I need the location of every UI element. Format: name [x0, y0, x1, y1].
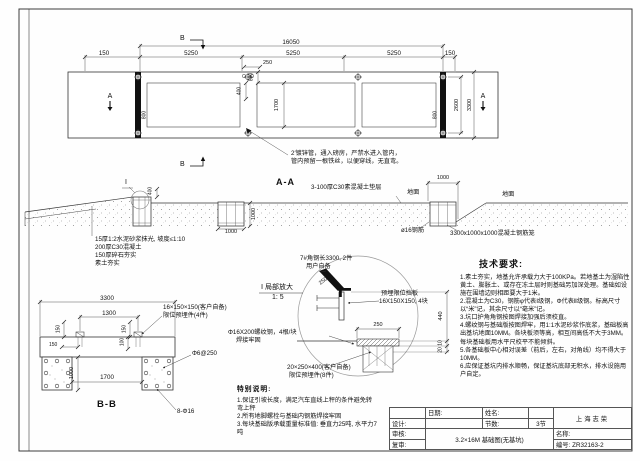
tb-recheck-label: 复审:	[390, 439, 426, 450]
plan-dim-800-right-bar: 800	[433, 111, 438, 119]
section-bb-title: B-B	[97, 400, 117, 410]
plan-dim-5250-2: 5250	[286, 51, 300, 58]
bb-bars-label: 8-Φ16	[177, 409, 194, 416]
detail-baffle-line2: 16X150X150, 4块	[379, 299, 428, 306]
plan-dim-2600: 2600	[455, 99, 461, 111]
plan-section-marker-a-right: A	[481, 93, 486, 100]
drawing-sheet: 16050 150 5250 5250 5250 150 800 250 400…	[0, 0, 640, 461]
tb-empty-cell	[390, 408, 426, 419]
detail-dim-20: 20	[438, 347, 443, 353]
plan-dim-5250-3: 5250	[387, 51, 401, 58]
detail-view	[259, 256, 449, 376]
tech-req-5: 5.各基础板中心相对误差（前后，左右，对角线）均不得大于10MM。	[460, 347, 630, 363]
detail-angle-line1: 7#角钢长3300, 2件	[300, 256, 352, 263]
tech-req-2: 2.混凝土为C30，钢筋φ代表Ⅰ级钢，Φ代表Ⅱ级钢。标高尺寸以“米”记，其余尺寸…	[460, 298, 630, 314]
plan-dim-800-left-bar: 800	[142, 111, 147, 119]
bb-dim-3300: 3300	[100, 296, 114, 303]
aa-cushion-label: 3-100厚C30素混凝土垫层	[311, 185, 382, 192]
aa-dim-400: 400	[148, 187, 153, 195]
tb-company: 上海志荣	[554, 408, 632, 429]
plan-dim-3300: 3300	[468, 99, 474, 111]
aa-detail-flag: I	[125, 179, 127, 186]
tech-requirements-title: 技术要求:	[479, 260, 523, 269]
detail-embed-line1: 20×250×400(客户自备)	[287, 365, 351, 372]
tech-req-4: 4.螺纹钢与基础版按图焊牢，用1:1水泥砂浆作底浆，基础板高出基坑地面10MM。…	[460, 322, 630, 346]
bb-dim-100: 100	[120, 338, 125, 346]
aa-dim-1000-w: 1000	[225, 230, 237, 236]
plan-dim-overall: 16050	[282, 40, 299, 47]
tb-title-label: 名称:	[554, 429, 632, 440]
detail-baffle-line1: 预埋限位挡板	[381, 291, 418, 298]
plan-dim-800-top: 800	[249, 73, 254, 81]
aa-dim-1000-h: 1000	[252, 208, 258, 220]
aa-ground-right-label: 地面	[502, 192, 514, 199]
bb-dim-150-right: 150	[122, 325, 127, 333]
bb-dim-1300: 1300	[102, 311, 116, 318]
tb-design-value	[426, 418, 483, 429]
bb-dim-1000: 1000	[70, 367, 76, 379]
tech-req-6: 6.应保证基坑内排水顺畅，保证基坑底部无积水，排水设施用户自定。	[460, 363, 630, 379]
aa-cage-label: 3300x1000x1000混凝土钢筋笼	[450, 231, 535, 238]
plan-dim-150-left: 150	[99, 51, 109, 58]
bb-stirrup-label: Φ6@250	[192, 351, 217, 358]
special-notes: 特别说明: 1.保证引坡长度，满足汽车直线上秤的条件避免转弯上秤 2.所有地脚螺…	[237, 386, 377, 437]
special-note-3: 3.每块基础版承载重量标准值: 垂直力25吨, 水平力7吨	[237, 421, 377, 437]
tb-drawing-title: 3.2×16M 基础图(无基坑)	[426, 429, 554, 450]
detail-embed-line2: 限位预埋件(8件)	[289, 373, 334, 380]
detail-dim-440: 440	[439, 311, 445, 320]
detail-angle-line2: 用户自备	[306, 264, 331, 271]
bb-dim-1700: 1700	[100, 375, 114, 382]
bb-limit-line2: 限位预埋件(4件)	[163, 313, 208, 320]
detail-dim-10: 10	[438, 340, 443, 346]
bb-dim-150-left: 150	[56, 325, 61, 333]
title-block: 日期: 姓名: 上海志荣 设计: 节数: 3节 审核: 3.2×16M 基础图(…	[389, 407, 632, 450]
detail-title-line1: Ⅰ 局部放大	[261, 284, 293, 291]
section-aa-title: A-A	[276, 178, 295, 187]
detail-dim-250: 250	[373, 323, 382, 329]
special-note-2: 2.所有地脚螺栓与基础内钢筋焊接牢固	[237, 413, 377, 421]
special-notes-title: 特别说明:	[237, 386, 377, 395]
plan-section-marker-b-bottom: B	[180, 161, 185, 168]
aa-dim-1000-pit: 1000	[437, 176, 449, 182]
tb-date-label: 日期:	[426, 408, 483, 419]
aa-rebar-label: ø16钢筋	[401, 228, 424, 235]
plan-dim-1700: 1700	[275, 99, 281, 111]
aa-layer-line2: 200厚C30混凝土	[95, 245, 141, 252]
detail-title-scale: 1: 5	[272, 294, 284, 301]
special-note-1: 1.保证引坡长度，满足汽车直线上秤的条件避免转弯上秤	[237, 397, 377, 413]
plan-dim-400: 400	[237, 87, 242, 95]
aa-ground-left-label: 地面	[407, 190, 419, 197]
tb-empty-cell2	[529, 408, 554, 419]
detail-rebar-line2: 焊接牢固	[236, 338, 261, 345]
bb-dim-150-h: 150	[49, 343, 57, 348]
plan-dim-5250-1: 5250	[184, 51, 198, 58]
plan-section-marker-b-top: B	[180, 35, 185, 42]
tb-number-label: 编号: ZR32163-2	[554, 439, 632, 450]
plan-pipe-note-line2: 管内预留一根铁丝，以便穿线，无直弯。	[291, 159, 402, 166]
aa-layer-line4: 素土夯实	[95, 261, 120, 268]
plan-view	[68, 40, 498, 166]
tb-review-label: 审核:	[390, 429, 426, 440]
plan-section-marker-a-left: A	[108, 93, 113, 100]
tb-design-label: 设计:	[390, 418, 426, 429]
detail-rebar-line1: Φ16X200螺纹钢，4根/块	[228, 330, 297, 337]
plan-dim-250: 250	[263, 61, 272, 67]
tb-sections-label: 节数:	[483, 418, 529, 429]
bb-limit-line1: 16×150×150(客户自备)	[163, 305, 227, 312]
aa-layer-line3: 150厚碎石夯实	[95, 253, 136, 260]
aa-layer-line1: 15厚1:2水泥砂浆抹光, 坡度≤1:10	[95, 237, 185, 244]
tb-sections-value: 3节	[529, 418, 554, 429]
tech-requirements: 1.素土夯实，地基允许承载力大于100KPa。若地基土为湿陷性黄土、膨胀土、或存…	[460, 274, 630, 379]
plan-pipe-note-line1: 2′镀锌管，通入磅房，严禁水进入管内，	[291, 151, 401, 158]
tech-req-1: 1.素土夯实，地基允许承载力大于100KPa。若地基土为湿陷性黄土、膨胀土、或存…	[460, 274, 630, 298]
plan-dim-150-right: 150	[445, 51, 455, 58]
tb-name-label: 姓名:	[483, 408, 529, 419]
